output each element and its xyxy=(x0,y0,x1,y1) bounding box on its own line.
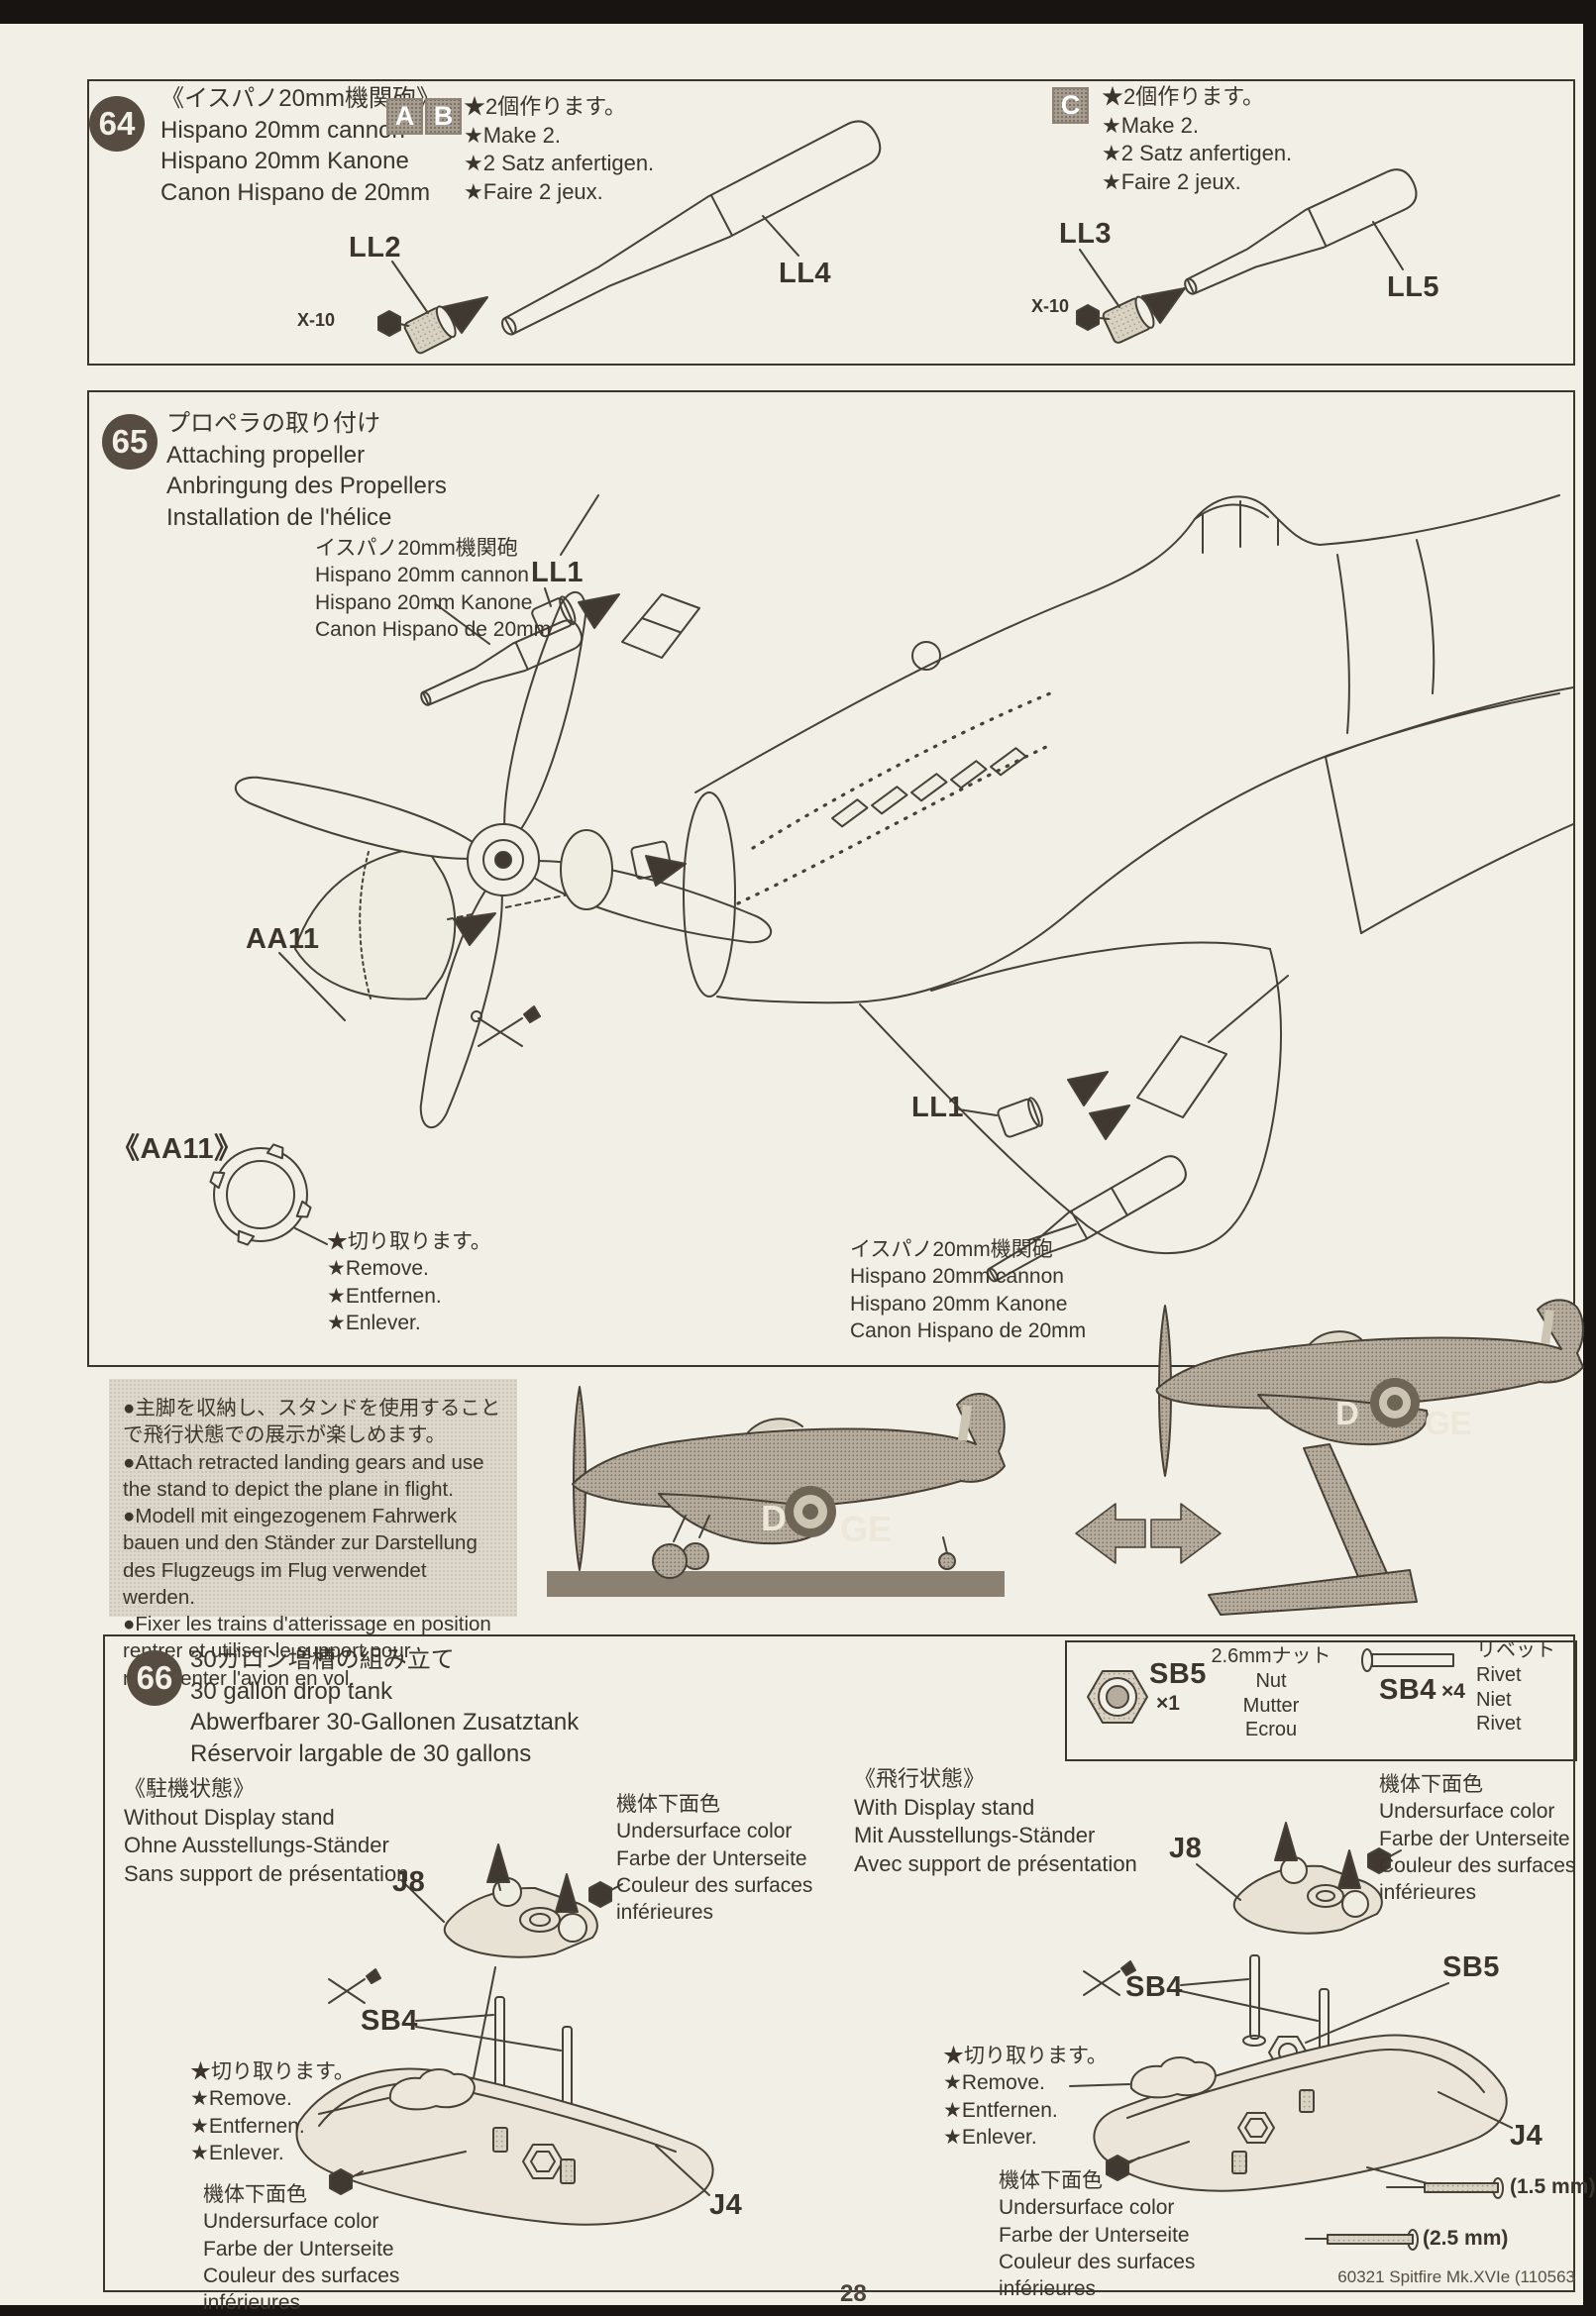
make-two-note: ★2個作ります。 ★Make 2. ★2 Satz anfertigen. ★F… xyxy=(464,93,654,206)
part-label-j8: J8 xyxy=(1169,1831,1202,1868)
marking-code-letter: D xyxy=(761,1498,787,1538)
marking-code-letter: D xyxy=(1335,1395,1359,1431)
marking-squadron-letters: GE xyxy=(1425,1405,1472,1441)
size-label-2-5mm: (2.5 mm) xyxy=(1423,2225,1508,2252)
swap-arrows-icon xyxy=(1076,1504,1221,1563)
tool-icon xyxy=(329,1969,380,2003)
remove-note: ★切り取ります。 ★Remove. ★Entfernen. ★Enlever. xyxy=(190,2058,355,2166)
part-label-aa11-detail: 《AA11》 xyxy=(111,1131,244,1169)
step-66-badge: 66 xyxy=(127,1650,182,1706)
marking-squadron-letters: GE xyxy=(840,1509,892,1549)
paint-x10-icon xyxy=(378,311,408,336)
step-66-title: 30ガロン増槽の組み立て 30 gallon drop tank Abwerfb… xyxy=(190,1644,579,1770)
part-name-sb5: 2.6mmナット Nut Mutter Ecrou xyxy=(1207,1644,1335,1742)
paint-label-x10: X-10 xyxy=(297,309,335,332)
rivet-icon xyxy=(1362,1649,1453,1671)
step-65-badge: 65 xyxy=(102,414,158,470)
part-label-ll2: LL2 xyxy=(349,230,401,267)
undersurface-color-note: 機体下面色 Undersurface color Farbe der Unter… xyxy=(203,2181,399,2316)
rivet-2-5mm-icon xyxy=(1306,2230,1418,2250)
plane-on-stand-illustration xyxy=(1157,1300,1583,1615)
part-qty-sb5: ×1 xyxy=(1156,1690,1180,1717)
remove-note: ★切り取ります。 ★Remove. ★Entfernen. ★Enlever. xyxy=(327,1228,491,1336)
paint-label-x10: X-10 xyxy=(1031,295,1069,318)
kit-footer-code: 60321 Spitfire Mk.XVIe (110563 xyxy=(1159,2266,1575,2288)
cannon-note-top: イスパノ20mm機関砲 Hispano 20mm cannon Hispano … xyxy=(315,535,551,643)
part-qty-sb4: ×4 xyxy=(1441,1678,1465,1705)
instruction-page: D GE D GE 64 《イスパノ20mm機関砲》 Hispano 20mm … xyxy=(0,0,1596,2316)
part-label-sb4: SB4 xyxy=(1125,1969,1183,2007)
size-label-1-5mm: (1.5 mm) xyxy=(1510,2173,1595,2200)
without-stand-heading: 《駐機状態》 Without Display stand Ohne Ausste… xyxy=(124,1775,408,1888)
step-65-title: プロペラの取り付け Attaching propeller Anbringung… xyxy=(166,408,447,534)
with-stand-heading: 《飛行状態》 With Display stand Mit Ausstellun… xyxy=(854,1765,1137,1878)
remove-note: ★切り取ります。 ★Remove. ★Entfernen. ★Enlever. xyxy=(943,2043,1108,2151)
plane-on-ground-illustration xyxy=(547,1387,1005,1597)
part-name-sb4: リベット Rivet Niet Rivet xyxy=(1476,1638,1565,1737)
rivet-1-5mm-icon xyxy=(1387,2178,1503,2198)
hex-nut-icon xyxy=(1088,1671,1147,1723)
part-label-ll1: LL1 xyxy=(531,555,584,592)
make-two-note: ★2個作ります。 ★Make 2. ★2 Satz anfertigen. ★F… xyxy=(1102,83,1292,196)
cannon-note-bottom: イスパノ20mm機関砲 Hispano 20mm cannon Hispano … xyxy=(850,1236,1086,1344)
part-label-sb4: SB4 xyxy=(361,2003,418,2041)
sprue-badge-c: C xyxy=(1052,87,1089,124)
part-label-sb4: SB4 xyxy=(1379,1672,1436,1710)
sprue-badge-a: A xyxy=(386,98,423,135)
page-number: 28 xyxy=(840,2278,867,2309)
part-label-ll5: LL5 xyxy=(1387,269,1439,307)
undersurface-color-note: 機体下面色 Undersurface color Farbe der Unter… xyxy=(1379,1771,1575,1906)
part-label-sb5: SB5 xyxy=(1442,1949,1500,1987)
part-label-j4: J4 xyxy=(709,2187,742,2225)
part-label-ll1: LL1 xyxy=(911,1090,964,1127)
step-64-badge: 64 xyxy=(89,96,145,152)
part-label-aa11: AA11 xyxy=(246,921,320,959)
flight-display-note: ●主脚を収納し、スタンドを使用することで飛行状態での展示が楽しめます。 ●Att… xyxy=(109,1379,517,1617)
part-label-j4: J4 xyxy=(1510,2118,1543,2156)
part-label-j8: J8 xyxy=(392,1864,425,1902)
part-label-ll3: LL3 xyxy=(1059,216,1112,254)
undersurface-color-note: 機体下面色 Undersurface color Farbe der Unter… xyxy=(616,1791,812,1926)
sprue-badge-b: B xyxy=(425,98,462,135)
part-label-sb5: SB5 xyxy=(1149,1656,1207,1694)
part-label-ll4: LL4 xyxy=(779,256,831,293)
